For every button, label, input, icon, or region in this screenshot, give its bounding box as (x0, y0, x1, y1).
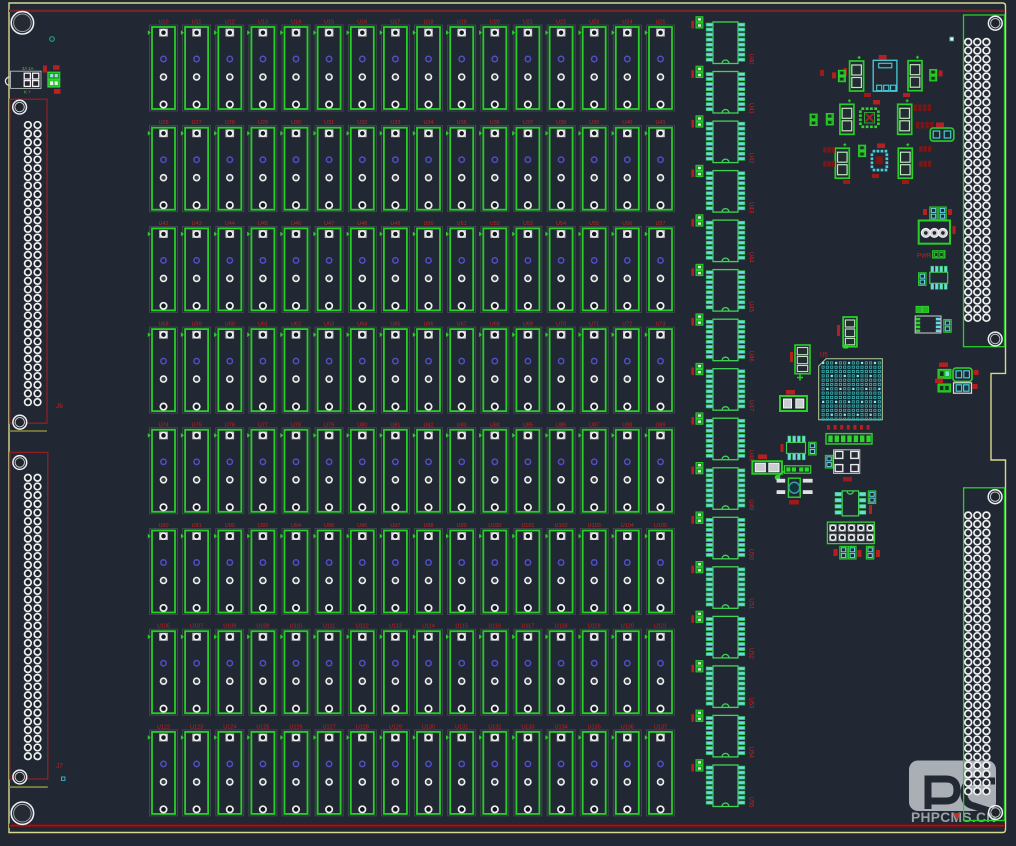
svg-text:U110: U110 (290, 624, 303, 630)
svg-text:U69: U69 (523, 322, 533, 328)
svg-text:U31: U31 (324, 120, 334, 126)
svg-text:U25: U25 (655, 20, 665, 26)
svg-text:U40: U40 (748, 53, 754, 65)
svg-text:U74: U74 (158, 422, 168, 428)
svg-text:U53: U53 (748, 697, 754, 709)
svg-text:U133: U133 (521, 724, 534, 730)
svg-text:U21: U21 (523, 20, 533, 26)
svg-text:U17: U17 (390, 20, 400, 26)
svg-text:U107: U107 (190, 624, 203, 630)
svg-text:U50: U50 (748, 549, 754, 561)
svg-text:U137: U137 (654, 724, 667, 730)
svg-text:U20: U20 (490, 20, 500, 26)
svg-text:U128: U128 (356, 724, 369, 730)
svg-text:U95: U95 (324, 523, 334, 529)
svg-text:U71: U71 (589, 322, 599, 328)
svg-text:U73: U73 (655, 322, 665, 328)
svg-text:U47: U47 (324, 221, 334, 227)
svg-text:U98: U98 (423, 523, 433, 529)
svg-text:U125: U125 (256, 724, 269, 730)
svg-text:U42: U42 (158, 221, 168, 227)
svg-text:U19: U19 (457, 20, 467, 26)
svg-text:U81: U81 (390, 422, 400, 428)
svg-text:U15: U15 (324, 20, 334, 26)
svg-text:U60: U60 (225, 322, 235, 328)
svg-text:U129: U129 (389, 724, 402, 730)
svg-text:U114: U114 (422, 624, 435, 630)
svg-text:U49: U49 (390, 221, 400, 227)
svg-text:U124: U124 (223, 724, 236, 730)
svg-text:U88: U88 (622, 422, 632, 428)
svg-text:U28: U28 (225, 120, 235, 126)
svg-text:U45: U45 (748, 301, 754, 313)
svg-text:U52: U52 (490, 221, 500, 227)
svg-text:U35: U35 (457, 120, 467, 126)
svg-text:U101: U101 (521, 523, 534, 529)
svg-text:U42: U42 (748, 153, 754, 165)
svg-text:U63: U63 (324, 322, 334, 328)
svg-text:U67: U67 (457, 322, 467, 328)
svg-text:U55: U55 (589, 221, 599, 227)
svg-text:U91: U91 (192, 523, 202, 529)
svg-text:U48: U48 (748, 450, 754, 462)
svg-text:U44: U44 (225, 221, 235, 227)
svg-text:U108: U108 (223, 624, 236, 630)
svg-text:U77: U77 (258, 422, 268, 428)
svg-text:U97: U97 (390, 523, 400, 529)
svg-text:J6: J6 (56, 403, 63, 410)
svg-text:U43: U43 (192, 221, 202, 227)
svg-text:U123: U123 (190, 724, 203, 730)
svg-text:U53: U53 (523, 221, 533, 227)
svg-text:U118: U118 (555, 624, 568, 630)
svg-text:U13: U13 (258, 20, 268, 26)
svg-text:U48: U48 (357, 221, 367, 227)
svg-text:U80: U80 (357, 422, 367, 428)
svg-text:U122: U122 (157, 724, 170, 730)
svg-text:U105: U105 (654, 523, 667, 529)
svg-text:U37: U37 (523, 120, 533, 126)
svg-text:U82: U82 (423, 422, 433, 428)
svg-text:U23: U23 (589, 20, 599, 26)
svg-text:U11: U11 (192, 20, 202, 26)
svg-text:U127: U127 (323, 724, 336, 730)
svg-text:U46: U46 (291, 221, 301, 227)
svg-text:U46: U46 (748, 351, 754, 363)
svg-text:U126: U126 (289, 724, 302, 730)
svg-text:U26: U26 (158, 120, 168, 126)
svg-text:PHPCMS.CN: PHPCMS.CN (911, 810, 997, 825)
svg-text:U79: U79 (324, 422, 334, 428)
svg-text:U119: U119 (588, 624, 601, 630)
svg-text:U84: U84 (490, 422, 500, 428)
svg-text:U16: U16 (357, 20, 367, 26)
svg-text:U121: U121 (654, 624, 667, 630)
svg-text:J7: J7 (56, 763, 63, 770)
svg-text:U58: U58 (158, 322, 168, 328)
svg-text:U40: U40 (622, 120, 632, 126)
svg-text:U57: U57 (655, 221, 665, 227)
svg-text:U111: U111 (323, 624, 335, 630)
svg-text:U87: U87 (589, 422, 599, 428)
svg-text:U70: U70 (556, 322, 566, 328)
svg-text:U54: U54 (556, 221, 566, 227)
svg-text:U92: U92 (225, 523, 235, 529)
svg-text:U76: U76 (225, 422, 235, 428)
svg-text:U100: U100 (488, 523, 501, 529)
svg-text:U51: U51 (748, 598, 754, 610)
svg-text:U10: U10 (158, 20, 168, 26)
svg-text:U109: U109 (256, 624, 269, 630)
svg-text:U106: U106 (157, 624, 170, 630)
svg-text:U103: U103 (588, 523, 601, 529)
svg-text:U93: U93 (258, 523, 268, 529)
svg-text:U38: U38 (556, 120, 566, 126)
svg-text:U41: U41 (655, 120, 665, 126)
svg-text:U136: U136 (621, 724, 634, 730)
svg-text:U41: U41 (748, 103, 754, 115)
svg-text:U135: U135 (588, 724, 601, 730)
svg-text:U59: U59 (192, 322, 202, 328)
svg-text:U54: U54 (748, 747, 754, 759)
svg-text:U78: U78 (291, 422, 301, 428)
svg-text:U56: U56 (622, 221, 632, 227)
svg-text:U134: U134 (555, 724, 568, 730)
svg-text:U30: U30 (291, 120, 301, 126)
svg-text:U27: U27 (192, 120, 202, 126)
svg-text:U64: U64 (357, 322, 367, 328)
svg-text:U55: U55 (748, 796, 754, 808)
svg-text:U5: U5 (820, 353, 828, 359)
svg-text:U94: U94 (291, 523, 301, 529)
svg-text:U85: U85 (523, 422, 533, 428)
svg-text:U132: U132 (488, 724, 501, 730)
svg-text:U116: U116 (488, 624, 501, 630)
svg-text:U68: U68 (490, 322, 500, 328)
svg-text:U14: U14 (291, 20, 301, 26)
svg-text:U29: U29 (258, 120, 268, 126)
svg-text:U24: U24 (622, 20, 632, 26)
svg-text:U131: U131 (455, 724, 468, 730)
svg-text:U44: U44 (748, 252, 754, 264)
svg-text:U86: U86 (556, 422, 566, 428)
svg-text:U90: U90 (158, 523, 168, 529)
svg-text:U83: U83 (457, 422, 467, 428)
svg-text:U61: U61 (258, 322, 268, 328)
svg-text:U66: U66 (423, 322, 433, 328)
svg-text:U18: U18 (423, 20, 433, 26)
svg-text:K +: K + (24, 89, 31, 94)
svg-text:U34: U34 (423, 120, 433, 126)
svg-text:U104: U104 (621, 523, 634, 529)
svg-text:U32: U32 (357, 120, 367, 126)
svg-text:U115: U115 (455, 624, 468, 630)
svg-text:U62: U62 (291, 322, 301, 328)
svg-text:PWR: PWR (917, 254, 932, 260)
svg-text:U22: U22 (556, 20, 566, 26)
svg-text:U52: U52 (748, 648, 754, 660)
svg-text:U75: U75 (192, 422, 202, 428)
svg-text:U120: U120 (621, 624, 634, 630)
svg-text:U89: U89 (655, 422, 665, 428)
svg-text:U117: U117 (522, 624, 535, 630)
svg-text:U39: U39 (589, 120, 599, 126)
svg-text:U49: U49 (748, 499, 754, 511)
svg-text:U65: U65 (390, 322, 400, 328)
svg-text:U99: U99 (457, 523, 467, 529)
svg-text:U45: U45 (258, 221, 268, 227)
svg-text:U113: U113 (389, 624, 402, 630)
svg-text:U12: U12 (225, 20, 235, 26)
svg-text:U96: U96 (357, 523, 367, 529)
svg-text:U51: U51 (457, 221, 467, 227)
svg-text:U72: U72 (622, 322, 632, 328)
svg-text:U102: U102 (555, 523, 568, 529)
svg-text:U47: U47 (748, 400, 754, 412)
svg-text:U50: U50 (423, 221, 433, 227)
svg-text:U112: U112 (356, 624, 369, 630)
svg-text:2A 1A: 2A 1A (22, 66, 34, 71)
svg-text:U43: U43 (748, 202, 754, 214)
svg-text:U33: U33 (390, 120, 400, 126)
svg-text:U36: U36 (490, 120, 500, 126)
svg-text:U130: U130 (422, 724, 435, 730)
